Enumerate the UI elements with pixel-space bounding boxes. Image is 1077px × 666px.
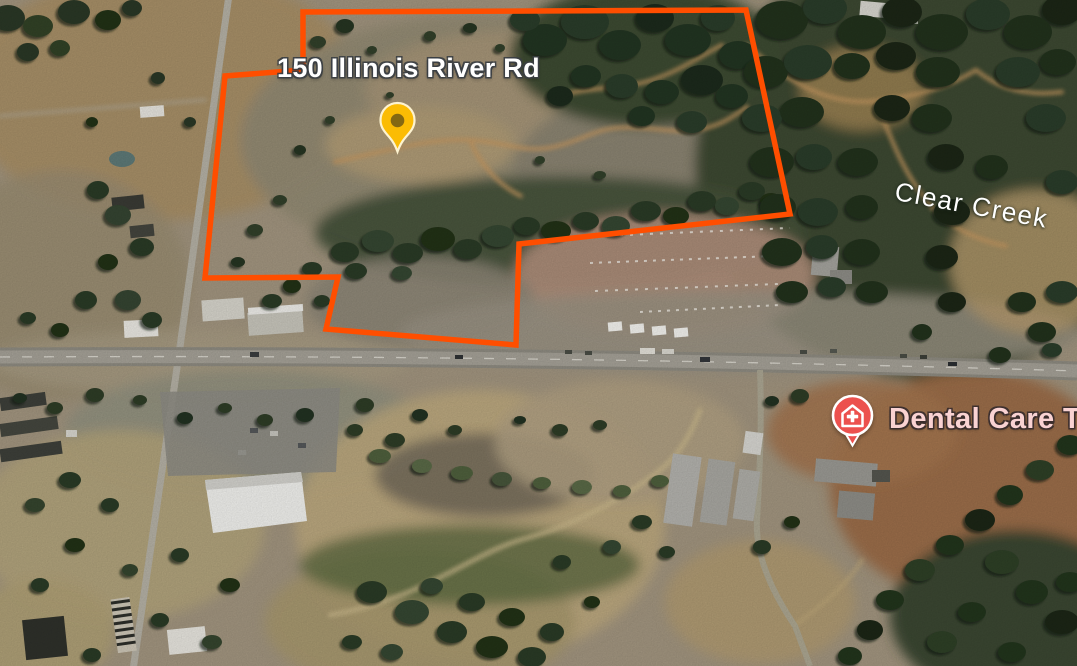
satellite-imagery <box>0 0 1077 666</box>
satellite-map-view[interactable]: 150 Illinois River Rd Clear Creek Dental… <box>0 0 1077 666</box>
dental-poi-pin[interactable] <box>830 394 875 452</box>
poi-label-dental[interactable]: Dental Care Too <box>889 403 1077 436</box>
map-pin-icon <box>381 103 415 152</box>
address-label: 150 Illinois River Rd <box>277 53 540 84</box>
address-location-pin[interactable] <box>377 101 418 155</box>
grain-overlay <box>0 0 1077 666</box>
map-pin-dot <box>391 114 405 128</box>
